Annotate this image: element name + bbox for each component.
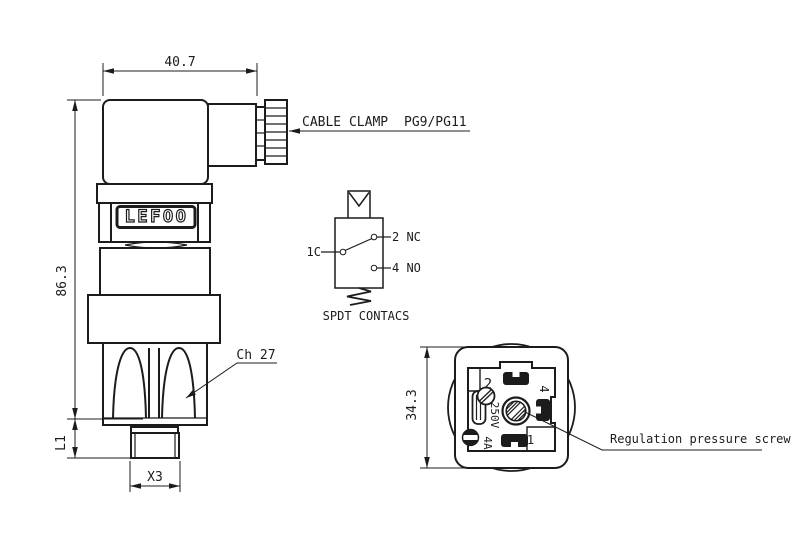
regulation-pressure-screw [503, 398, 530, 425]
spring-symbol [347, 288, 371, 305]
hex-callout: Ch 27 [186, 348, 277, 398]
terminal4-number: 4 [537, 385, 551, 392]
dim-height-value: 86.3 [55, 265, 70, 296]
housing-flange [97, 184, 212, 203]
cable-clamp-nut [265, 100, 287, 164]
cable-clamp-label: CABLE CLAMP [302, 115, 388, 130]
terminal-no-label: 4 NO [392, 261, 421, 275]
terminal-slot-bottom [501, 434, 528, 447]
thread-stub [131, 433, 179, 458]
brand-label-plate: LEFOO [117, 207, 195, 228]
switch-box [335, 218, 383, 288]
plunger-v [349, 193, 369, 207]
voltage-rating: 250V [488, 402, 501, 429]
dim-thread-length-value: L1 [54, 435, 69, 451]
dim-thread-size-value: X3 [147, 470, 163, 485]
spdt-schematic: 1C 2 NC 4 NO SPDT CONTACS [307, 191, 421, 323]
base-flange [88, 295, 220, 343]
dimension-height: 86.3 [55, 100, 101, 419]
switch-blade [345, 239, 372, 251]
dimension-thread-size: X3 [130, 461, 180, 492]
dim-connector-value: 34.3 [405, 389, 420, 420]
terminal1-number: 1 [527, 433, 534, 447]
switch-body [100, 248, 210, 295]
schematic-shapes [321, 191, 391, 305]
din-plug-housing [103, 100, 208, 184]
hex-size-label: Ch 27 [236, 348, 275, 363]
contact-no-dot [371, 265, 377, 271]
side-view: LEFOO [88, 100, 287, 458]
cable-clamp-ring [256, 107, 265, 160]
current-rating: 4A [481, 436, 494, 450]
terminal-common-label: 1C [307, 245, 321, 259]
brand-logo-text: LEFOO [125, 207, 189, 227]
drawing-canvas: LEFOO 40.7 86.3 [0, 0, 800, 547]
dimension-width: 40.7 [103, 55, 257, 96]
cable-clamp-size-label: PG9/PG11 [404, 115, 467, 130]
terminal-slot-right [536, 399, 550, 421]
ground-screw [462, 430, 479, 446]
connector-face-view: 2 4 250V 4A 1 34.3 Regulation pressure s… [405, 344, 791, 471]
terminal2-number: 2 [484, 377, 492, 393]
regulation-label: Regulation pressure screw [610, 432, 791, 446]
pressure-switch-technical-drawing: LEFOO 40.7 86.3 [0, 0, 800, 547]
terminal-slot-top [503, 372, 529, 385]
dim-width-value: 40.7 [164, 55, 195, 70]
hex-nut [103, 343, 207, 425]
cable-clamp-callout: CABLE CLAMP PG9/PG11 [289, 115, 470, 131]
terminal-nc-label: 2 NC [392, 230, 421, 244]
cable-gland-body [208, 104, 256, 166]
schematic-caption: SPDT CONTACS [323, 309, 410, 323]
